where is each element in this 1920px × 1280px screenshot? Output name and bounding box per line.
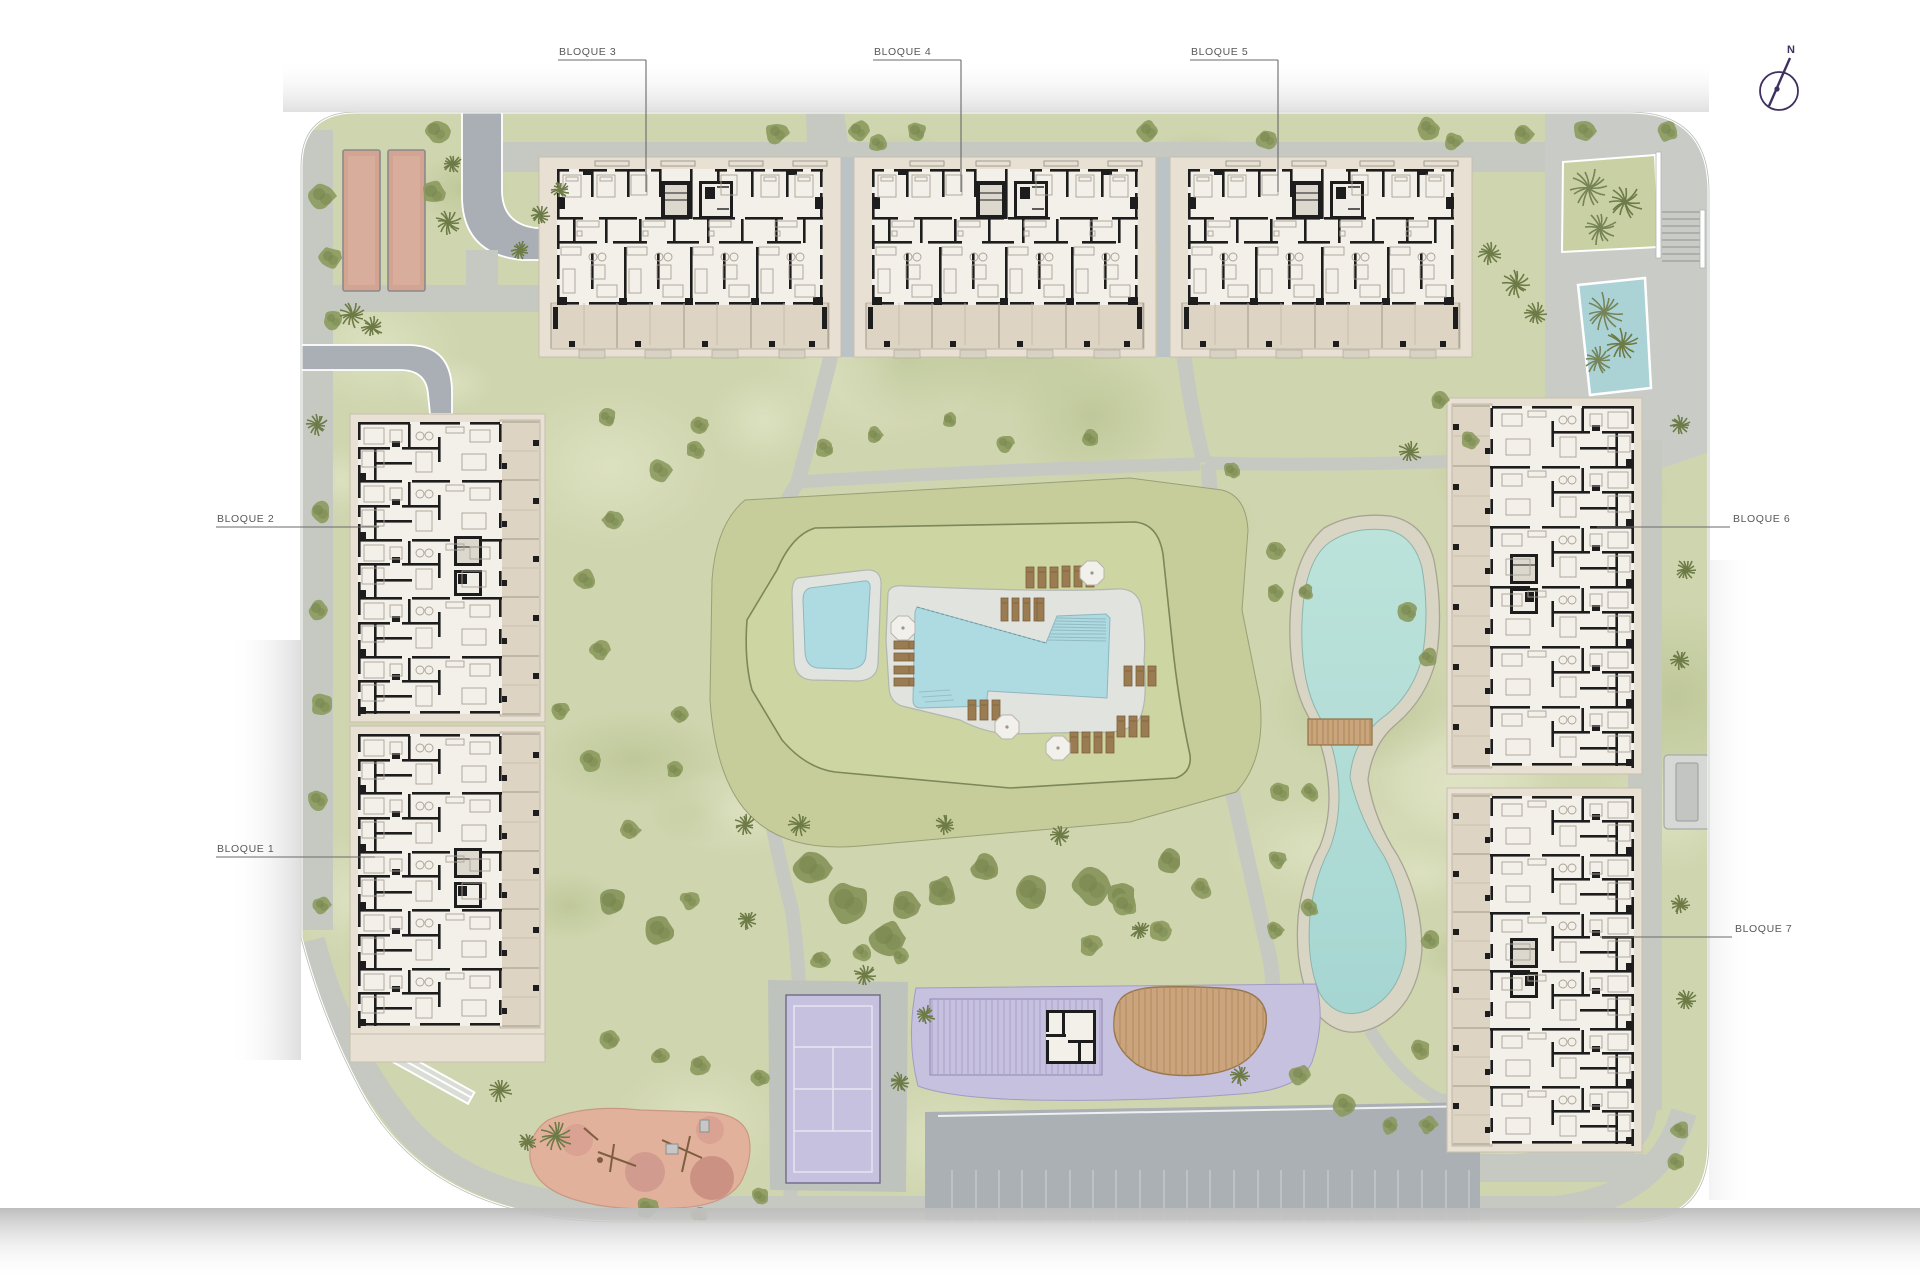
svg-text:BLOQUE 5: BLOQUE 5 xyxy=(1191,46,1248,58)
svg-text:BLOQUE 7: BLOQUE 7 xyxy=(1735,923,1792,935)
svg-text:BLOQUE 1: BLOQUE 1 xyxy=(217,843,274,855)
svg-text:BLOQUE 6: BLOQUE 6 xyxy=(1733,513,1790,525)
svg-text:BLOQUE 4: BLOQUE 4 xyxy=(874,46,931,58)
svg-text:N: N xyxy=(1787,44,1795,56)
svg-text:BLOQUE 3: BLOQUE 3 xyxy=(559,46,616,58)
svg-text:BLOQUE 2: BLOQUE 2 xyxy=(217,513,274,525)
